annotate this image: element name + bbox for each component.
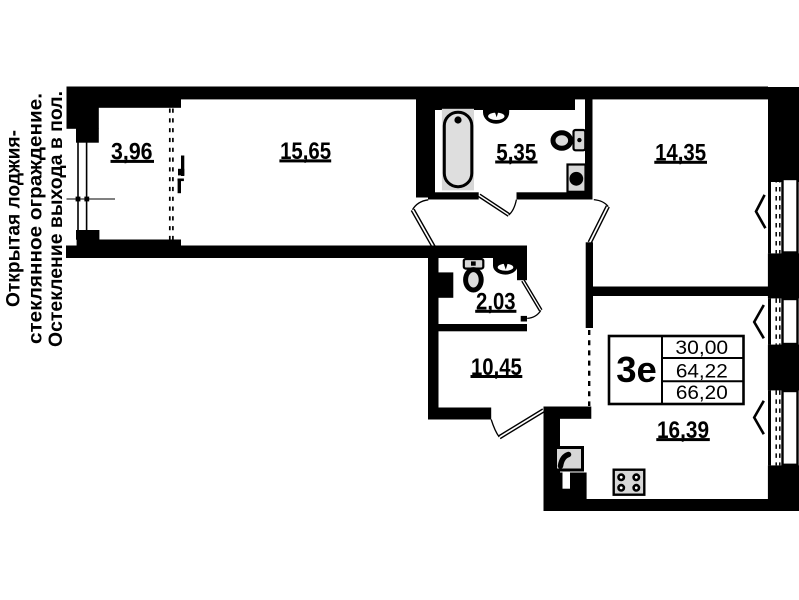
svg-text:Открытая лоджия-: Открытая лоджия- xyxy=(4,130,25,307)
svg-text:3е: 3е xyxy=(616,349,657,390)
svg-text:стеклянное ограждение.: стеклянное ограждение. xyxy=(26,93,47,344)
svg-text:64,22: 64,22 xyxy=(676,362,728,383)
svg-text:Остекление выхода в пол.: Остекление выхода в пол. xyxy=(46,91,67,347)
svg-text:30,00: 30,00 xyxy=(675,338,728,359)
svg-text:66,20: 66,20 xyxy=(676,383,728,404)
